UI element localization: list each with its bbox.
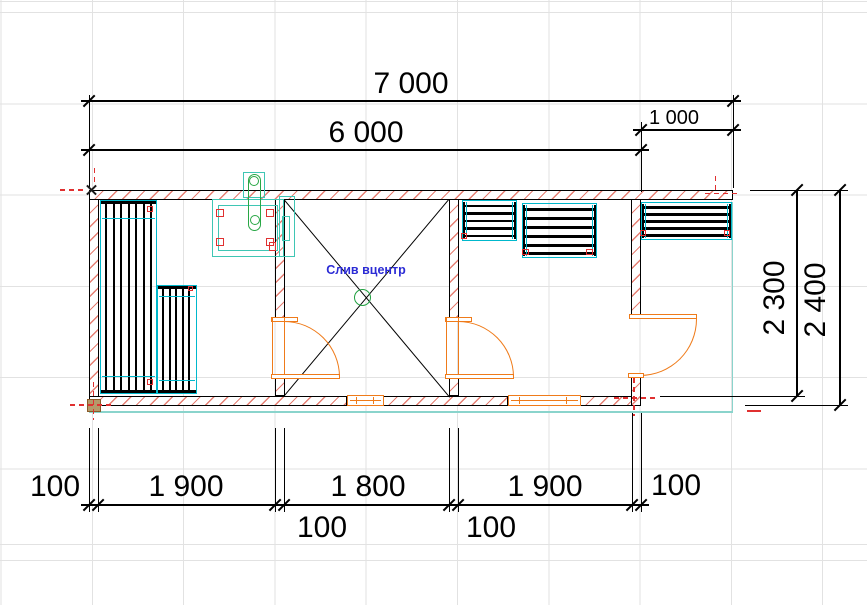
extension-line — [449, 428, 450, 512]
site-base-line — [89, 411, 733, 413]
bench-plank — [465, 212, 514, 215]
drain-note: Слив вцентр — [306, 263, 426, 277]
wall-right-upper — [631, 199, 641, 318]
extension-line — [660, 396, 805, 397]
bench-plank — [128, 203, 130, 391]
entrance-door-jamb — [628, 373, 644, 378]
entrance-door-swing-arc — [640, 319, 697, 376]
door2-swing-arc — [458, 321, 514, 377]
window-mullion — [356, 397, 357, 404]
extension-line — [458, 428, 459, 512]
wall-bottom-seg2 — [383, 396, 508, 406]
dim-label-inner-height: 2 300 — [759, 218, 791, 378]
bench-edge — [159, 380, 195, 381]
bench-plank — [169, 288, 171, 391]
extension-line — [750, 190, 848, 191]
dim-line-1000 — [633, 129, 741, 130]
door1-jamb — [272, 318, 273, 378]
bench-plank — [644, 227, 729, 230]
dim-line-bottom — [81, 504, 649, 505]
bench-plank — [135, 203, 137, 391]
bench-plank — [525, 235, 594, 238]
grid-line — [0, 544, 867, 545]
partition1-stub — [275, 377, 285, 396]
floorplan-canvas[interactable]: Слив вцентр — [0, 0, 867, 605]
hotspot-marker — [269, 242, 276, 251]
window-restroom — [508, 395, 581, 406]
dim-label-porch-width: 1 000 — [614, 107, 734, 129]
stove-leg — [266, 209, 274, 217]
bench-plank — [644, 234, 729, 237]
door1-swing-arc — [284, 321, 340, 377]
bench-plank — [182, 288, 184, 391]
axis-marker — [633, 378, 635, 416]
bench-rail — [594, 205, 596, 256]
bench-plank — [465, 205, 514, 208]
window-mullion — [373, 397, 374, 404]
hotspot-marker — [522, 249, 529, 255]
wall-bottom-seg1 — [89, 396, 347, 406]
window-mullion — [566, 397, 567, 404]
dim-line-7000 — [81, 100, 741, 101]
bench-plank — [644, 213, 729, 216]
sauna-bench-small — [157, 285, 197, 394]
bench-plank — [143, 203, 145, 391]
stove-leg — [216, 209, 224, 217]
porch-bench — [641, 202, 732, 240]
dim-label-room2: 1 800 — [288, 471, 448, 503]
dim-label-total-width: 7 000 — [331, 68, 491, 100]
extension-line — [641, 122, 642, 192]
bench-edge — [159, 296, 195, 297]
bench-plank — [525, 244, 594, 247]
hotspot-marker — [586, 249, 593, 255]
hotspot-marker — [147, 379, 153, 385]
stove-leg — [216, 238, 224, 246]
hotspot-marker — [147, 206, 153, 212]
bench-plank — [465, 227, 514, 230]
bench-plank — [188, 288, 190, 391]
bench-plank — [525, 208, 594, 211]
window-glazing-line — [350, 400, 381, 401]
dim-label-outer-height: 2 400 — [800, 220, 832, 380]
partition2-stub — [449, 377, 459, 396]
sauna-bench-large — [100, 200, 157, 394]
bench-edge — [102, 376, 155, 377]
window-washroom — [347, 395, 384, 406]
dim-line-2400 — [839, 190, 840, 405]
bench-plank — [465, 220, 514, 223]
axis-marker — [93, 382, 95, 420]
axis-marker — [94, 168, 96, 186]
axis-marker — [715, 176, 717, 194]
window-glazing-line — [511, 400, 578, 401]
dim-label-partition1: 100 — [242, 512, 402, 544]
chimney-flue-icon — [249, 176, 259, 186]
hotspot-marker — [640, 230, 646, 236]
bench-edge — [512, 202, 513, 239]
bench-plank — [525, 252, 594, 255]
door2-jamb — [446, 318, 447, 378]
bench-plank — [525, 217, 594, 220]
dim-label-main-width: 6 000 — [286, 117, 446, 149]
bench-plank — [644, 206, 729, 209]
bench-plank — [105, 203, 107, 391]
dim-label-right-wall: 100 — [596, 470, 756, 502]
bench-plank — [113, 203, 115, 391]
grid-line — [0, 1, 867, 2]
chimney-flue-icon — [250, 215, 260, 225]
bench-plank — [162, 288, 164, 391]
bench-plank — [525, 226, 594, 229]
entrance-door-leaf — [629, 314, 697, 319]
dim-label-partition2: 100 — [411, 512, 571, 544]
water-tank-inner — [282, 216, 290, 241]
partition2-upper — [449, 199, 459, 318]
floor-drain-icon — [354, 289, 371, 306]
bench-plank — [644, 220, 729, 223]
wall-left — [89, 199, 99, 406]
bench-edge — [102, 218, 155, 219]
bench-plank — [120, 203, 122, 391]
restroom-bench-small — [462, 200, 517, 241]
extension-line — [275, 428, 276, 512]
dim-line-6000 — [81, 149, 649, 150]
hotspot-marker — [724, 230, 730, 236]
bench-plank — [150, 203, 152, 391]
bench-plank — [175, 288, 177, 391]
extension-line — [284, 428, 285, 512]
window-mullion — [519, 397, 520, 404]
hotspot-marker — [188, 286, 193, 291]
extension-line — [745, 405, 848, 406]
dim-label-room1: 1 900 — [106, 471, 266, 503]
bench-plank — [465, 235, 514, 238]
axis-marker — [747, 410, 761, 412]
extension-line — [89, 95, 90, 187]
dim-line-2300 — [796, 190, 797, 396]
axis-marker — [705, 193, 738, 195]
axis-marker — [60, 189, 87, 191]
hotspot-marker — [461, 233, 467, 239]
